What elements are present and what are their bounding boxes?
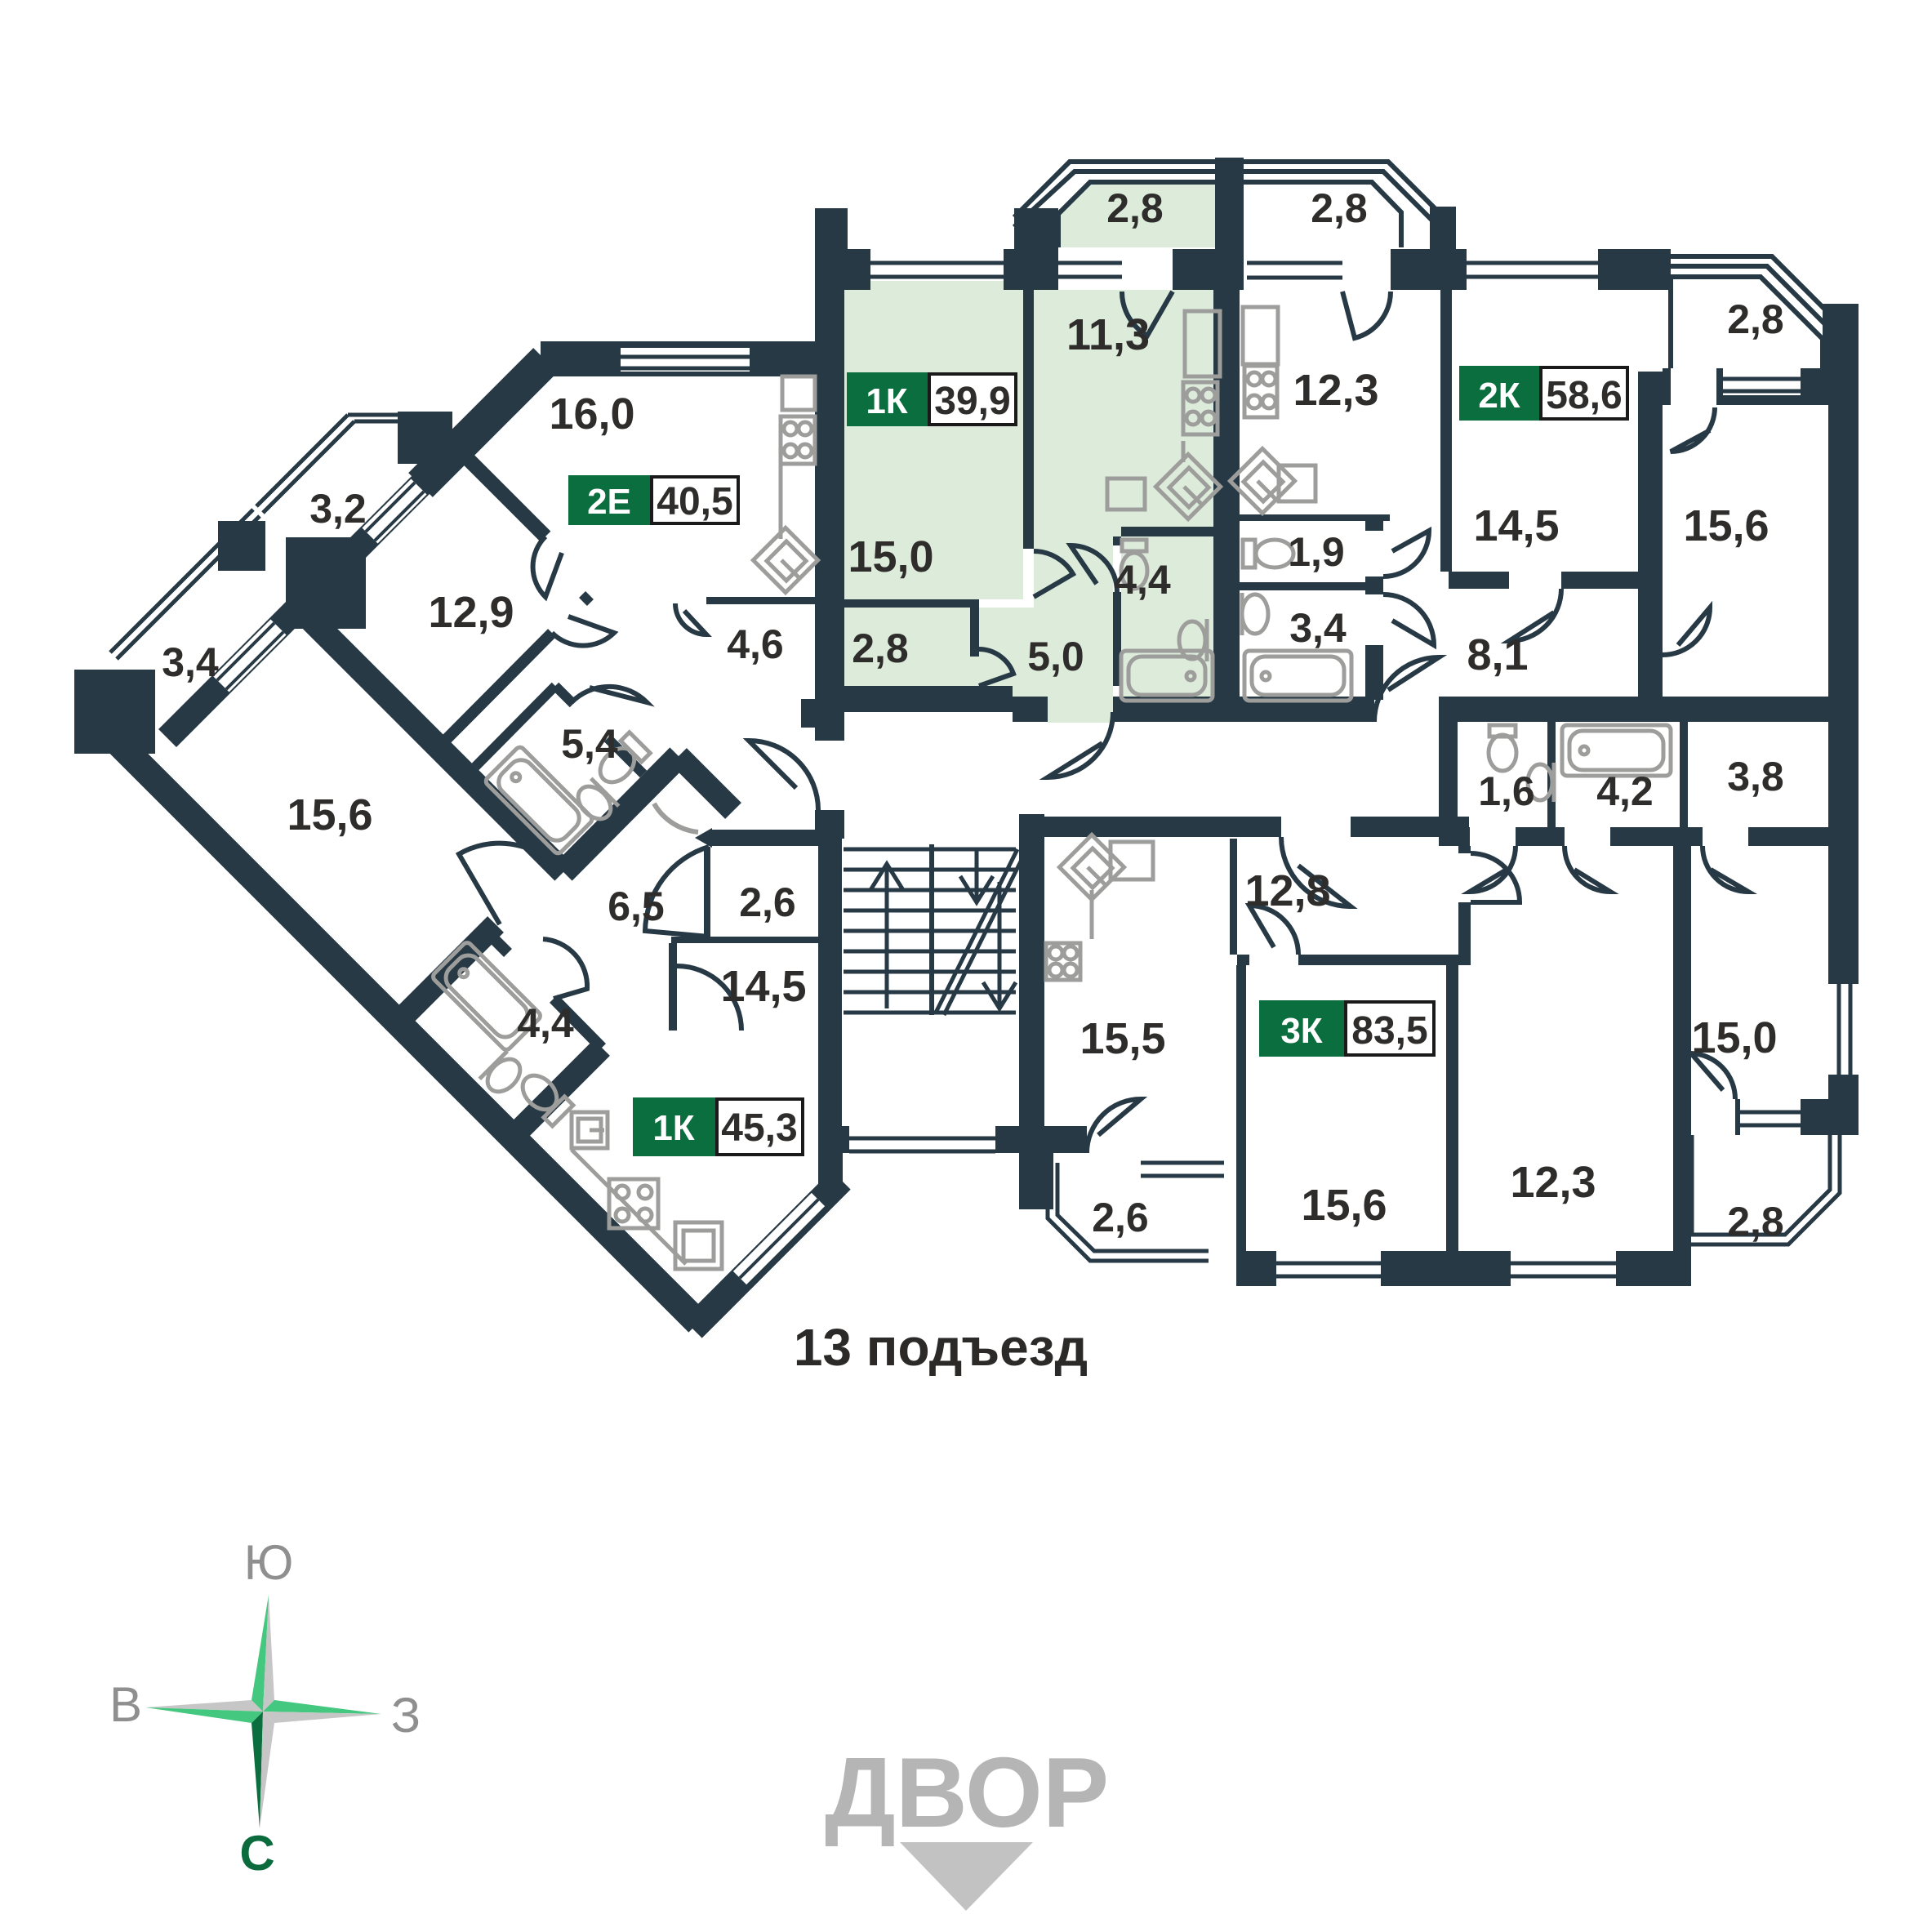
svg-text:4,2: 4,2: [1596, 768, 1654, 814]
svg-text:3К: 3К: [1280, 1011, 1322, 1051]
svg-text:16,0: 16,0: [549, 390, 634, 438]
svg-text:В: В: [109, 1677, 142, 1732]
svg-text:2,6: 2,6: [1092, 1195, 1149, 1240]
svg-text:4,6: 4,6: [727, 621, 784, 667]
svg-text:15,0: 15,0: [848, 532, 933, 581]
svg-text:Ю: Ю: [244, 1535, 294, 1590]
svg-text:39,9: 39,9: [934, 380, 1010, 423]
svg-text:4,4: 4,4: [517, 1000, 574, 1046]
svg-text:2К: 2К: [1478, 376, 1520, 416]
svg-text:2,8: 2,8: [1311, 185, 1368, 231]
svg-text:8,1: 8,1: [1467, 630, 1528, 679]
svg-text:1,9: 1,9: [1288, 529, 1345, 575]
svg-text:15,6: 15,6: [1683, 501, 1769, 550]
svg-text:1К: 1К: [652, 1108, 694, 1148]
svg-text:С: С: [239, 1826, 274, 1881]
svg-text:40,5: 40,5: [657, 480, 732, 523]
svg-text:2Е: 2Е: [587, 482, 631, 522]
svg-text:12,9: 12,9: [428, 588, 514, 637]
svg-text:4,4: 4,4: [1114, 557, 1171, 603]
svg-text:3,4: 3,4: [1289, 605, 1347, 651]
svg-text:1К: 1К: [866, 381, 907, 421]
svg-text:58,6: 58,6: [1546, 374, 1622, 417]
svg-text:13 подъезд: 13 подъезд: [794, 1318, 1088, 1377]
svg-text:14,5: 14,5: [720, 962, 806, 1011]
svg-text:15,5: 15,5: [1080, 1014, 1165, 1063]
svg-text:З: З: [391, 1688, 421, 1743]
svg-text:15,6: 15,6: [287, 790, 372, 839]
svg-text:15,6: 15,6: [1301, 1181, 1387, 1230]
svg-text:5,4: 5,4: [561, 721, 618, 767]
svg-text:15,0: 15,0: [1691, 1013, 1777, 1062]
svg-text:83,5: 83,5: [1351, 1009, 1427, 1053]
svg-text:3,2: 3,2: [309, 486, 367, 532]
svg-text:11,3: 11,3: [1066, 310, 1150, 359]
svg-text:12,3: 12,3: [1293, 366, 1378, 415]
svg-text:45,3: 45,3: [721, 1106, 797, 1150]
svg-text:2,8: 2,8: [852, 625, 909, 671]
svg-text:12,8: 12,8: [1244, 866, 1330, 915]
svg-text:12,3: 12,3: [1510, 1158, 1596, 1207]
svg-text:3,4: 3,4: [162, 639, 219, 685]
svg-text:2,8: 2,8: [1106, 185, 1164, 231]
svg-text:3,8: 3,8: [1727, 754, 1784, 799]
svg-text:2,8: 2,8: [1727, 1199, 1784, 1244]
svg-text:14,5: 14,5: [1473, 501, 1559, 550]
svg-text:2,8: 2,8: [1727, 296, 1784, 342]
svg-text:1,6: 1,6: [1478, 768, 1535, 814]
svg-text:2,6: 2,6: [739, 879, 796, 925]
svg-text:5,0: 5,0: [1027, 634, 1084, 679]
svg-text:ДВОР: ДВОР: [825, 1737, 1109, 1848]
svg-text:6,5: 6,5: [608, 884, 665, 929]
